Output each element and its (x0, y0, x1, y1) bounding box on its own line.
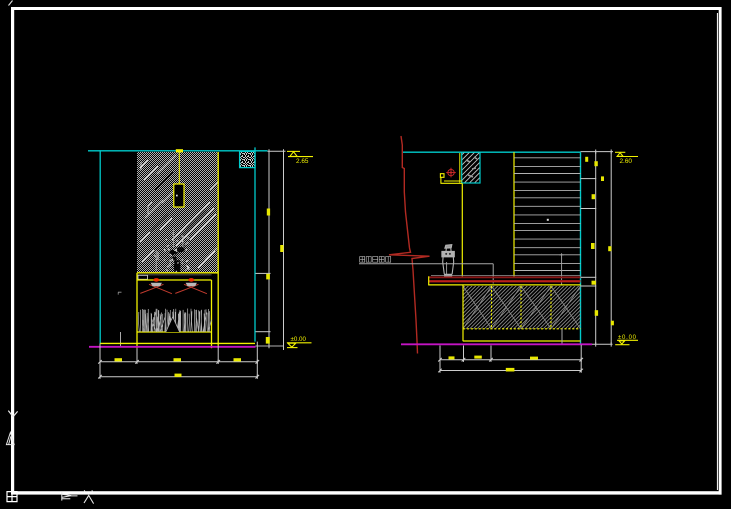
svg-text:2.60: 2.60 (620, 158, 633, 165)
svg-text:2.65: 2.65 (296, 158, 309, 165)
svg-text:±0.00: ±0.00 (291, 336, 307, 343)
